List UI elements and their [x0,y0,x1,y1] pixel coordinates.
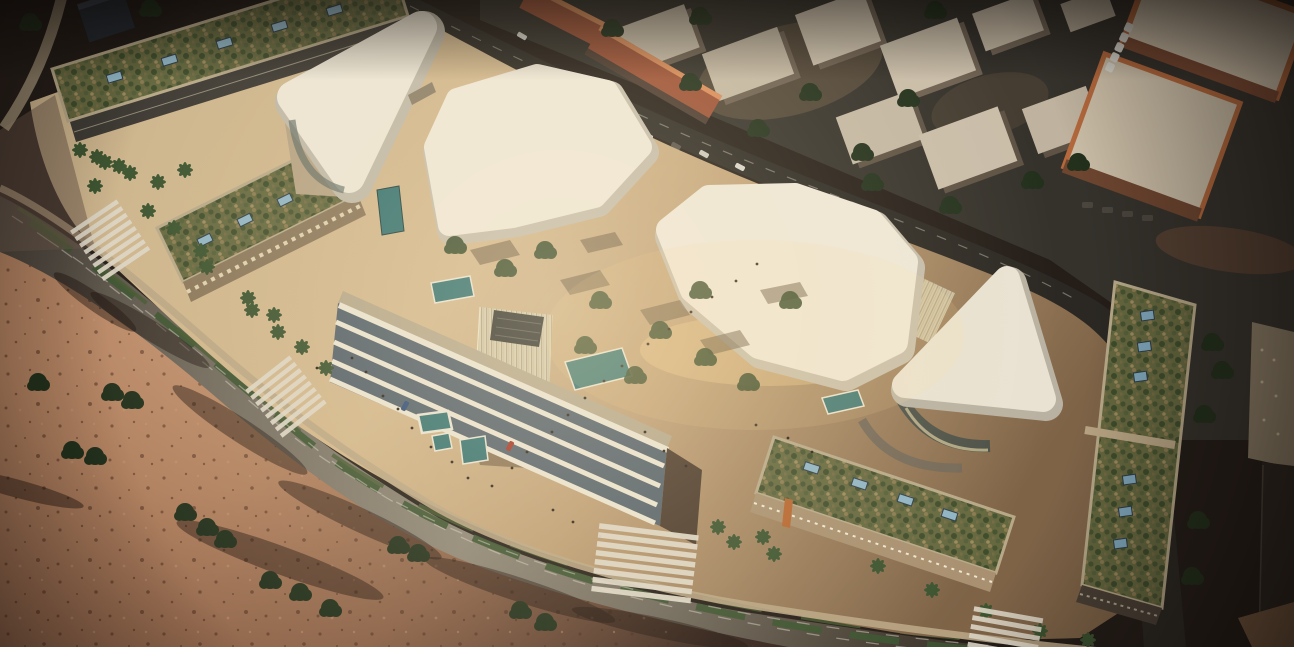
scene-canvas [0,0,1294,647]
aerial-rendering [0,0,1294,647]
top-edge-shade [0,0,1294,80]
vignette-overlay [0,0,1294,647]
